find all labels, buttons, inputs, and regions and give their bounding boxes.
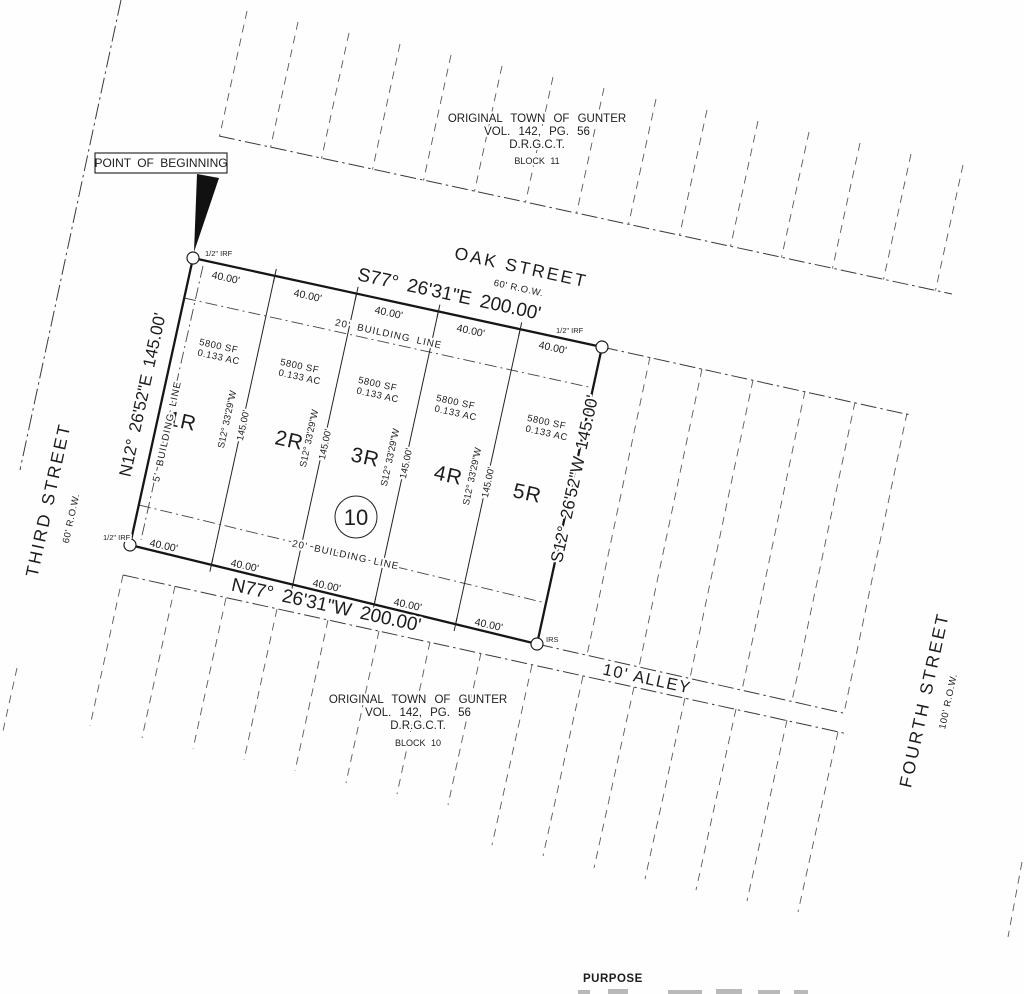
hatch-line [142, 586, 175, 738]
block11-drgct: D.R.G.C.T. [509, 139, 565, 151]
hatch-line [696, 709, 736, 890]
plat-sheet: POINT OF BEGINNING ORIGINAL TOWN OF GUNT… [0, 0, 1024, 994]
hatch-line [244, 609, 277, 760]
text-fragment [794, 990, 808, 994]
hatch-line [844, 413, 907, 713]
interior-distance-4: 145.00' [480, 466, 497, 499]
lot-4R-id: 4R [432, 461, 465, 490]
text-fragment [608, 989, 628, 994]
hatch-line [680, 110, 708, 236]
dim-top-2: 40.00' [293, 287, 323, 305]
hatch-line [884, 154, 912, 280]
monument-sw-label: 1/2" IRF [103, 533, 131, 542]
dim-top-1: 40.00' [211, 269, 241, 287]
block11-title: ORIGINAL TOWN OF GUNTER [448, 113, 626, 125]
hatch-line [322, 33, 350, 159]
pob-label: POINT OF BEGINNING [94, 156, 227, 170]
lot-2R-id: 2R [273, 426, 306, 455]
interior-distance-2: 145.00' [317, 428, 334, 461]
hatch-line [690, 380, 753, 678]
hatch-line [782, 132, 810, 258]
hatch-line [492, 665, 532, 845]
monument-ne-label: 1/2" IRF [556, 326, 584, 335]
hatch-line [3, 668, 17, 731]
hatch-line [742, 391, 805, 690]
lot-3R-id: 3R [349, 443, 382, 472]
hatch-line [731, 121, 759, 247]
east-block-hatch [587, 347, 910, 713]
monument-se-label: IRS [546, 635, 559, 644]
monument-nw-label: 1/2" IRF [205, 249, 233, 258]
hatch-line [220, 11, 248, 137]
dim-top-4: 40.00' [456, 322, 486, 340]
plat-drawing: POINT OF BEGINNING ORIGINAL TOWN OF GUNT… [0, 0, 1024, 994]
hatch-line [1008, 862, 1022, 937]
hatch-line [594, 687, 634, 868]
block11-vol: VOL. 142, PG. 56 [484, 126, 590, 138]
text-fragment [668, 990, 702, 994]
fourth-street-row: 100' R.O.W. [937, 673, 960, 730]
hatch-line [792, 402, 855, 701]
monument-nw [187, 252, 199, 264]
alley-south-line [123, 575, 848, 734]
block10-lot-hatch [3, 575, 1022, 937]
hatch-line [373, 44, 401, 170]
hatch-line [448, 653, 481, 805]
purpose-heading: PURPOSE [583, 973, 643, 985]
oak-south-line-east [602, 347, 910, 415]
interior-distance-1: 145.00' [235, 409, 252, 442]
monument-ne [596, 341, 608, 353]
block10-drgct: D.R.G.C.T. [390, 720, 446, 732]
block10-number: BLOCK 10 [395, 738, 441, 748]
dim-top-5: 40.00' [538, 339, 568, 357]
interior-distance-3: 145.00' [398, 447, 415, 480]
text-fragment [758, 990, 780, 994]
monument-se [531, 638, 543, 650]
block10-title: ORIGINAL TOWN OF GUNTER [329, 694, 507, 706]
hatch-line [193, 598, 226, 749]
block-circle-number: 10 [344, 505, 368, 530]
hatch-line [833, 143, 861, 269]
lot-5R-id: 5R [511, 479, 544, 508]
hatch-line [543, 676, 583, 856]
hatch-line [629, 99, 657, 225]
pob-leader [194, 174, 219, 252]
alley-lines [123, 575, 848, 734]
third-street-row: 60' R.O.W. [61, 493, 83, 545]
labels: POINT OF BEGINNING ORIGINAL TOWN OF GUNT… [22, 113, 960, 985]
block11-lot-hatch [219, 11, 963, 294]
hatch-line [639, 369, 702, 667]
text-fragment [578, 990, 590, 994]
hatch-line [90, 575, 123, 726]
alley-label: 10' ALLEY [601, 661, 693, 698]
hatch-line [271, 22, 299, 148]
third-street-label: THIRD STREET [22, 421, 75, 579]
hatch-line [645, 698, 685, 879]
hatch-line [936, 165, 964, 291]
third-street-row-line [20, 0, 121, 470]
hatch-line [577, 88, 605, 214]
dim-top-3: 40.00' [374, 304, 404, 322]
hatch-line [295, 620, 328, 771]
rear-building-line-label: 20' BUILDING LINE [291, 539, 400, 573]
block10-vol: VOL. 142, PG. 56 [365, 707, 471, 719]
hatch-line [747, 720, 787, 901]
street-row-line [20, 0, 121, 470]
cutoff-text-fragments [578, 989, 808, 994]
hatch-line [798, 732, 838, 912]
block11-number: BLOCK 11 [514, 156, 559, 166]
text-fragment [716, 989, 742, 994]
